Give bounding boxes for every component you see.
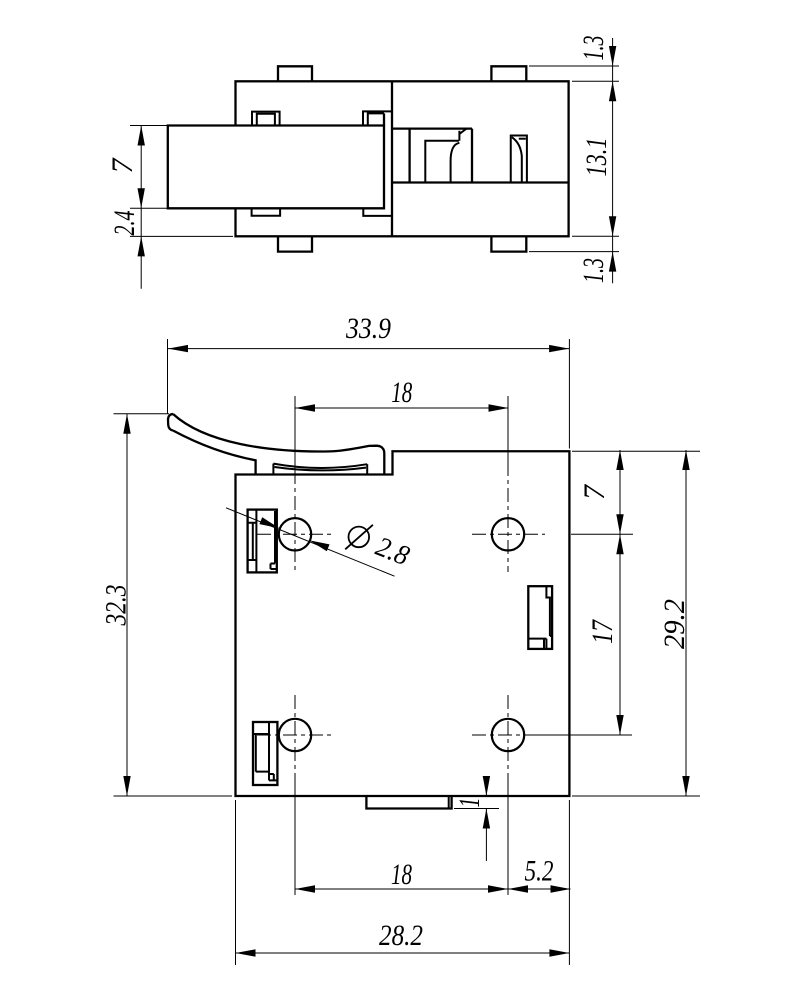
svg-text:1.3: 1.3 (577, 36, 610, 61)
svg-text:7: 7 (578, 483, 611, 500)
svg-text:2.4: 2.4 (108, 211, 141, 236)
svg-text:2.8: 2.8 (371, 531, 413, 572)
svg-text:33.9: 33.9 (345, 312, 391, 345)
svg-text:1: 1 (453, 798, 486, 808)
svg-text:18: 18 (391, 858, 412, 891)
svg-text:5.2: 5.2 (525, 855, 554, 888)
svg-text:18: 18 (391, 376, 412, 409)
svg-text:13.1: 13.1 (580, 138, 613, 177)
svg-text:32.3: 32.3 (100, 585, 133, 627)
svg-text:29.2: 29.2 (658, 599, 691, 649)
svg-text:7: 7 (106, 157, 139, 174)
svg-text:17: 17 (586, 618, 619, 644)
svg-text:28.2: 28.2 (379, 919, 423, 952)
svg-text:1.3: 1.3 (577, 258, 610, 283)
